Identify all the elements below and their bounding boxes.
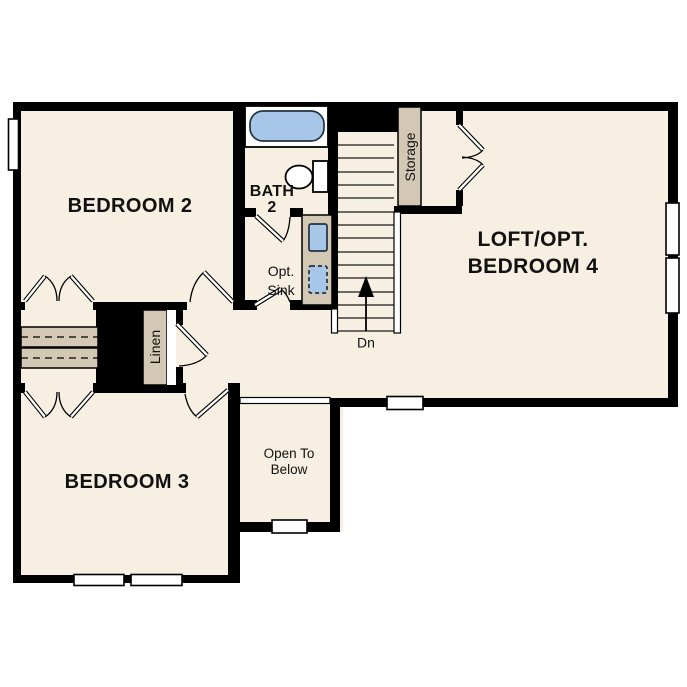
wall-stair-head	[328, 102, 398, 132]
linen-label: Linen	[147, 330, 163, 364]
loft-label-line1: LOFT/OPT.	[468, 226, 599, 253]
railing-stair-right	[394, 212, 401, 333]
loft-label-line2: BEDROOM 4	[468, 253, 599, 280]
wall-storage-bottom	[394, 206, 462, 214]
wall-bedroom3-bottom	[13, 575, 240, 583]
wall-open-below-right	[330, 398, 340, 532]
linen-floor-strip	[167, 310, 176, 385]
bedroom3-label: BEDROOM 3	[65, 472, 190, 492]
optional-sink	[309, 266, 327, 293]
window-loft-right-1	[666, 203, 679, 255]
window-bedroom3-bottom-1	[74, 575, 124, 586]
wall-bedroom3-top-stub	[13, 383, 25, 393]
floorplan-canvas: BEDROOM 2 BATH 2 LOFT/OPT. BEDROOM 4 Opt…	[0, 0, 687, 687]
bath-label-line1: BATH	[250, 184, 294, 200]
toilet-tank	[313, 161, 328, 192]
floorplan-drawing	[0, 0, 687, 687]
wall-closet-core	[96, 302, 143, 387]
bathtub	[250, 111, 324, 141]
wall-bedroom2-bath	[233, 102, 245, 310]
window-loft-bottom	[387, 397, 423, 410]
open-to-below-line1: Open To	[264, 446, 315, 462]
loft-label: LOFT/OPT. BEDROOM 4	[468, 226, 599, 280]
stairs-dn-label: Dn	[357, 334, 375, 353]
wall-loft-bottom	[330, 398, 678, 407]
storage-label: Storage	[402, 132, 418, 181]
wall-bedroom2-bottom-stub	[13, 302, 25, 310]
railing-stair-left	[332, 309, 338, 333]
open-to-below-label: Open To Below	[264, 446, 315, 478]
railing-open-below-top	[240, 398, 330, 404]
opt-sink-label: Opt. Sink	[267, 262, 294, 300]
bath-label: BATH 2	[250, 184, 294, 216]
wall-left	[13, 102, 21, 583]
window-bedroom2-left	[9, 119, 19, 170]
wall-storage-jamb-bottom	[456, 190, 463, 206]
window-open-below-bottom	[272, 520, 307, 533]
wall-storage-jamb-top	[456, 102, 463, 125]
wall-bedroom3-right	[228, 383, 240, 583]
bath-label-line2: 2	[250, 200, 294, 216]
vanity-sink	[309, 224, 327, 251]
wall-bath-bottom-left	[233, 300, 257, 310]
bedroom2-label: BEDROOM 2	[68, 196, 193, 216]
window-bedroom3-bottom-2	[131, 575, 182, 586]
window-loft-right-2	[666, 258, 679, 313]
opt-sink-label-line1: Opt.	[267, 262, 294, 281]
opt-sink-label-line2: Sink	[267, 281, 294, 300]
open-to-below-line2: Below	[264, 462, 315, 478]
